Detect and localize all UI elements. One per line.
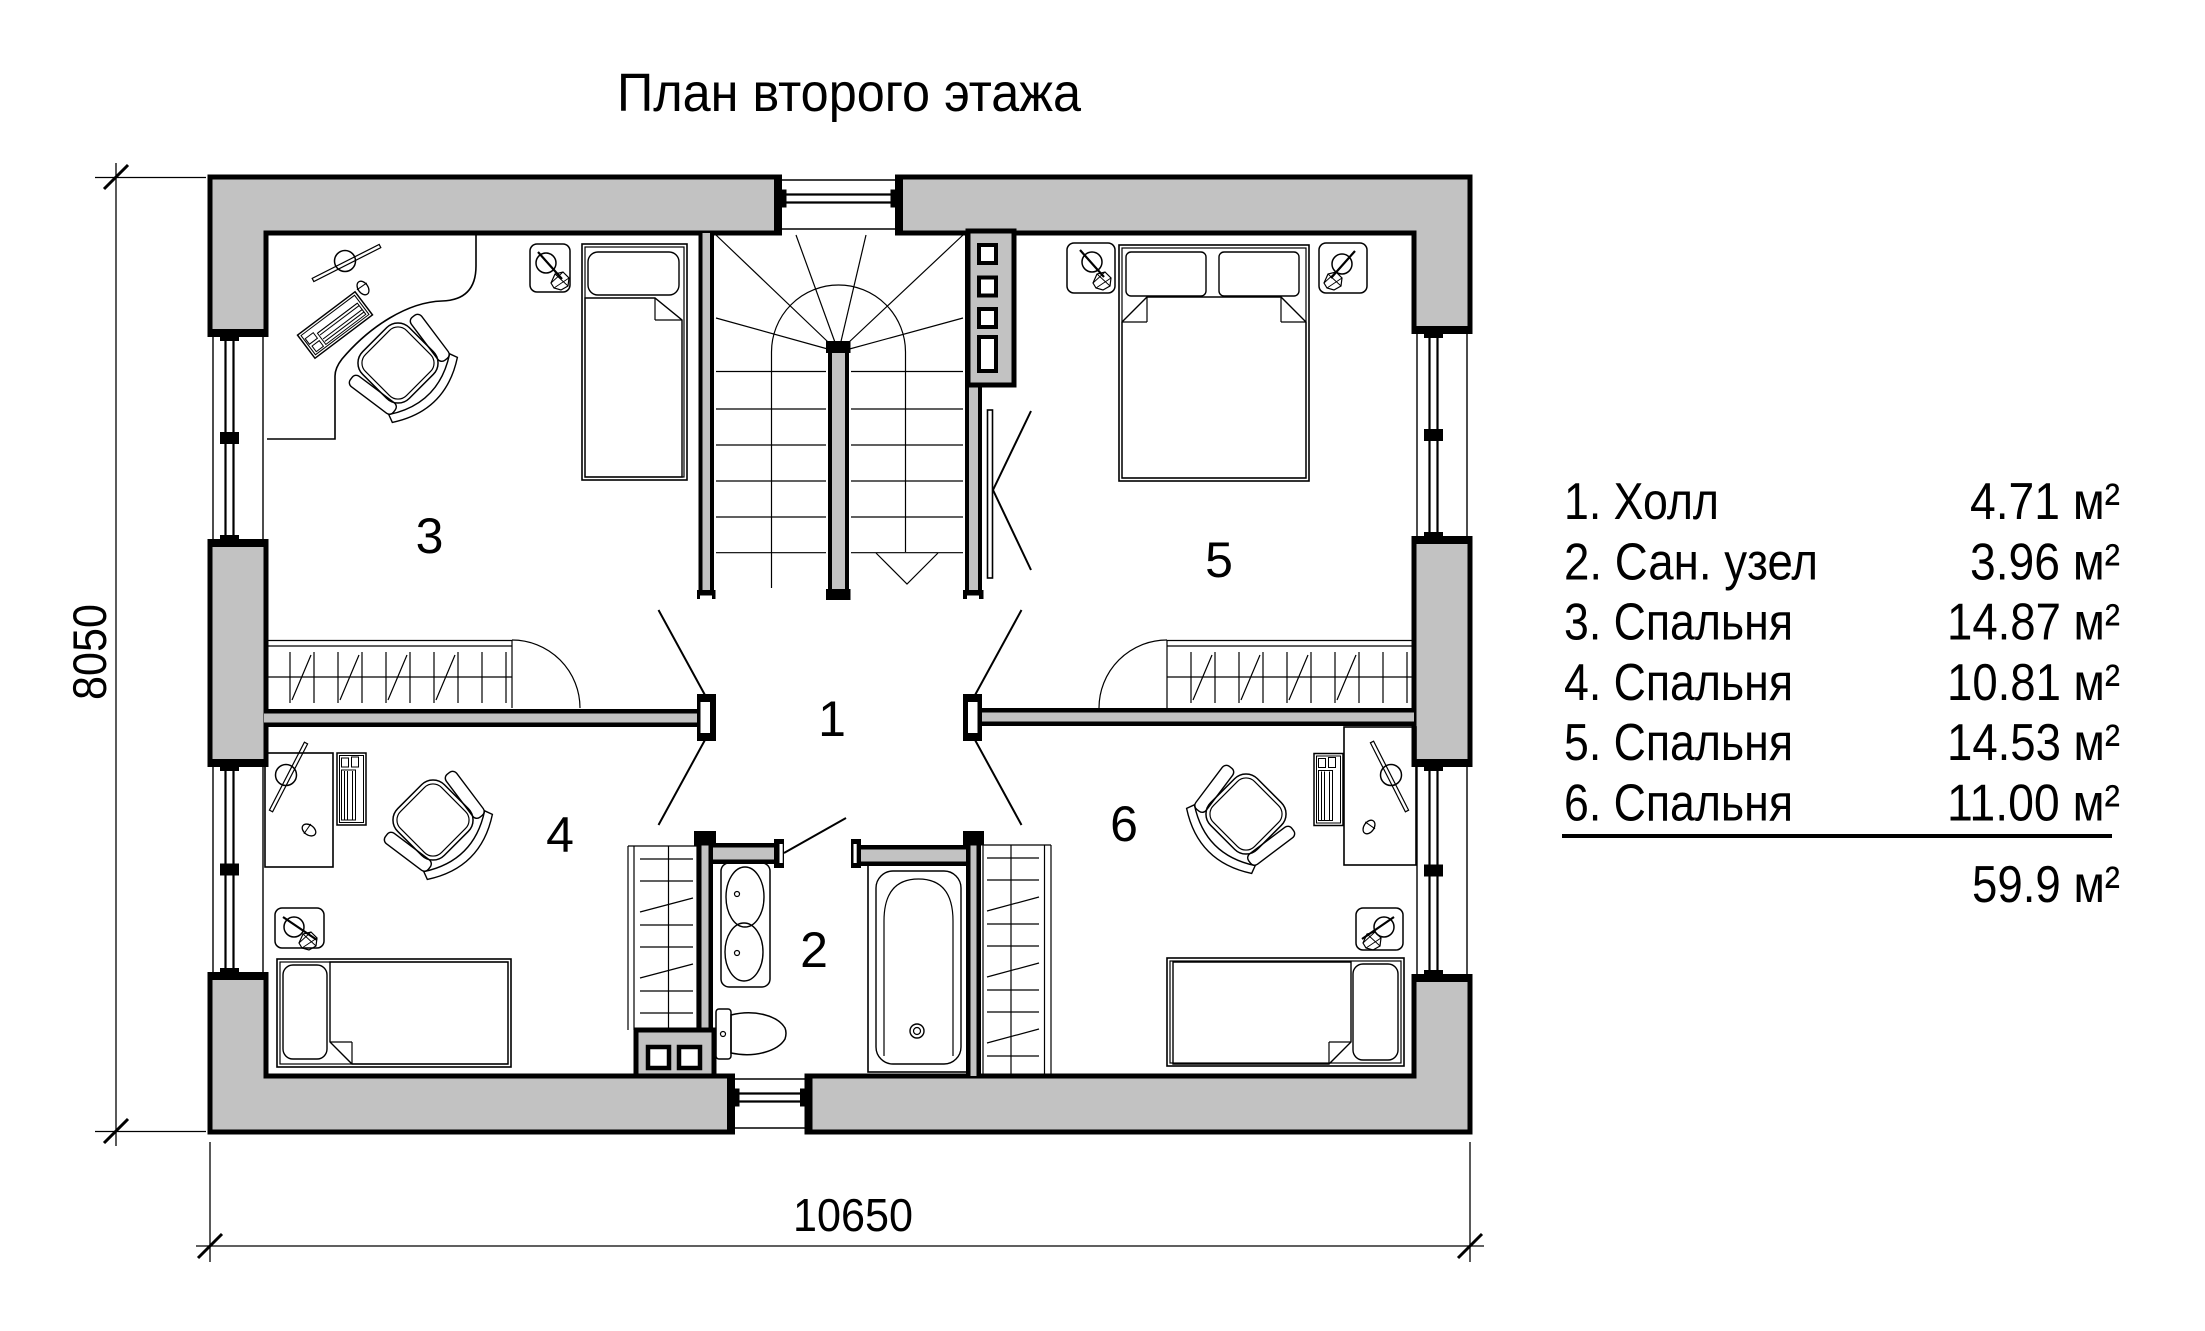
svg-text:11.00 м²: 11.00 м² — [1947, 775, 2120, 833]
svg-text:5: 5 — [1205, 532, 1233, 588]
svg-text:4: 4 — [546, 807, 574, 863]
svg-text:5. Спальня: 5. Спальня — [1564, 714, 1793, 772]
svg-text:10.81 м²: 10.81 м² — [1947, 654, 2120, 712]
svg-text:59.9 м²: 59.9 м² — [1972, 856, 2120, 914]
svg-text:4.71 м²: 4.71 м² — [1970, 473, 2120, 531]
svg-text:8050: 8050 — [63, 604, 116, 700]
svg-text:10650: 10650 — [793, 1189, 913, 1241]
svg-text:4. Спальня: 4. Спальня — [1564, 654, 1793, 712]
svg-text:План второго этажа: План второго этажа — [617, 63, 1082, 123]
svg-text:2. Сан. узел: 2. Сан. узел — [1564, 533, 1818, 591]
svg-text:6: 6 — [1110, 796, 1138, 852]
svg-text:3: 3 — [416, 508, 444, 564]
svg-text:6. Спальня: 6. Спальня — [1564, 775, 1793, 833]
svg-text:3. Спальня: 3. Спальня — [1564, 594, 1793, 652]
svg-text:1. Холл: 1. Холл — [1564, 473, 1719, 531]
svg-text:14.53 м²: 14.53 м² — [1947, 714, 2120, 772]
svg-text:14.87 м²: 14.87 м² — [1947, 594, 2120, 652]
svg-text:3.96 м²: 3.96 м² — [1970, 533, 2120, 591]
svg-text:1: 1 — [818, 691, 846, 747]
svg-text:2: 2 — [800, 922, 828, 978]
